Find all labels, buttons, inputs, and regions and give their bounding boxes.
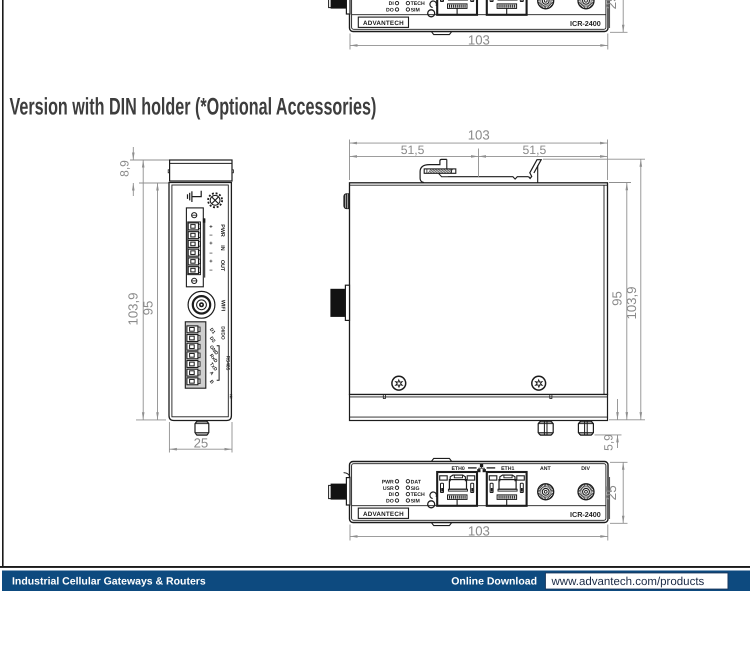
svg-text:5,9: 5,9 [602,434,616,451]
svg-text:−: − [209,233,213,239]
svg-text:103,9: 103,9 [125,292,140,325]
svg-text:WIFI: WIFI [220,300,226,312]
svg-text:103,9: 103,9 [624,286,639,319]
svg-text:103: 103 [468,128,490,143]
svg-text:Version with DIN holder (*Opti: Version with DIN holder (*Optional Acces… [10,94,377,121]
svg-text:25: 25 [194,436,209,451]
svg-text:+: + [209,225,213,231]
svg-text:Industrial Cellular Gateways &: Industrial Cellular Gateways & Routers [12,576,206,588]
svg-text:IN: IN [219,245,225,250]
svg-text:+: + [209,241,213,247]
svg-text:www.advantech.com/products: www.advantech.com/products [551,576,705,588]
svg-text:95: 95 [140,301,155,316]
svg-text:51,5: 51,5 [401,143,425,157]
svg-text:8,9: 8,9 [118,160,132,177]
svg-text:OUT: OUT [219,260,225,272]
svg-text:−: − [209,251,213,257]
svg-text:Online Download: Online Download [451,576,537,588]
svg-text:DI/DO: DI/DO [220,326,226,340]
svg-text:51,5: 51,5 [523,143,547,157]
svg-text:RS485: RS485 [224,356,230,371]
svg-text:PWR: PWR [219,224,225,237]
svg-text:95: 95 [610,291,625,306]
svg-text:+: + [209,259,213,265]
svg-text:−: − [209,268,213,274]
